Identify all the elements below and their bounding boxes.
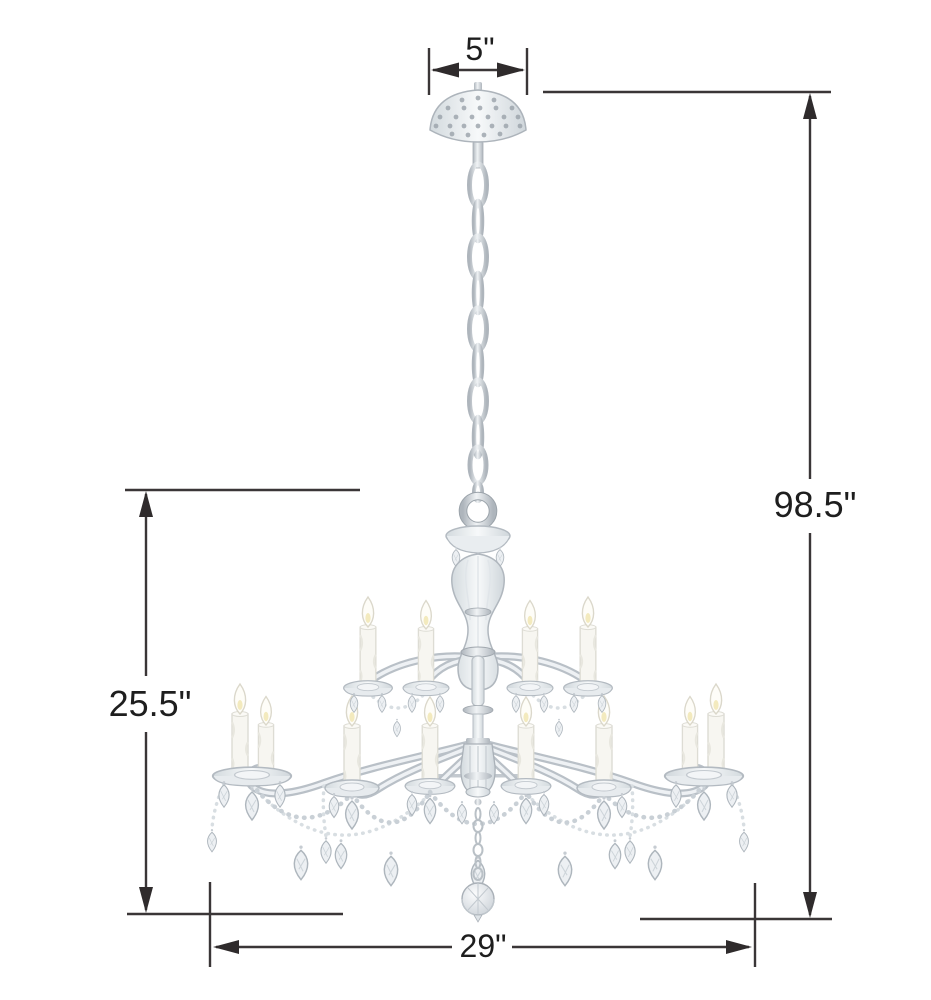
dimension-diagram: 5" 98.5" 25.5" 29" <box>0 0 931 1000</box>
chandelier <box>208 82 749 922</box>
arrow-up-icon <box>139 491 153 517</box>
arms-right <box>478 597 748 886</box>
arrow-left-icon <box>213 940 239 954</box>
chandelier-lantern <box>458 738 499 824</box>
chandelier-chain <box>470 140 487 501</box>
chandelier-canopy <box>430 82 526 142</box>
overall-height-label: 98.5" <box>774 487 857 523</box>
chandelier-top-ring <box>459 492 497 530</box>
chandelier-column <box>452 554 504 740</box>
arrow-down-icon <box>803 892 817 918</box>
fixture-width-label: 29" <box>460 930 507 962</box>
canopy-width-label: 5" <box>465 33 494 65</box>
fixture-height-label: 25.5" <box>109 686 192 722</box>
arrow-down-icon <box>139 887 153 913</box>
arrow-left-icon <box>431 63 459 78</box>
arrow-right-icon <box>726 940 752 954</box>
arms-left <box>208 597 478 886</box>
arrow-up-icon <box>803 93 817 119</box>
arrow-right-icon <box>497 63 525 78</box>
center-swag <box>430 792 526 890</box>
